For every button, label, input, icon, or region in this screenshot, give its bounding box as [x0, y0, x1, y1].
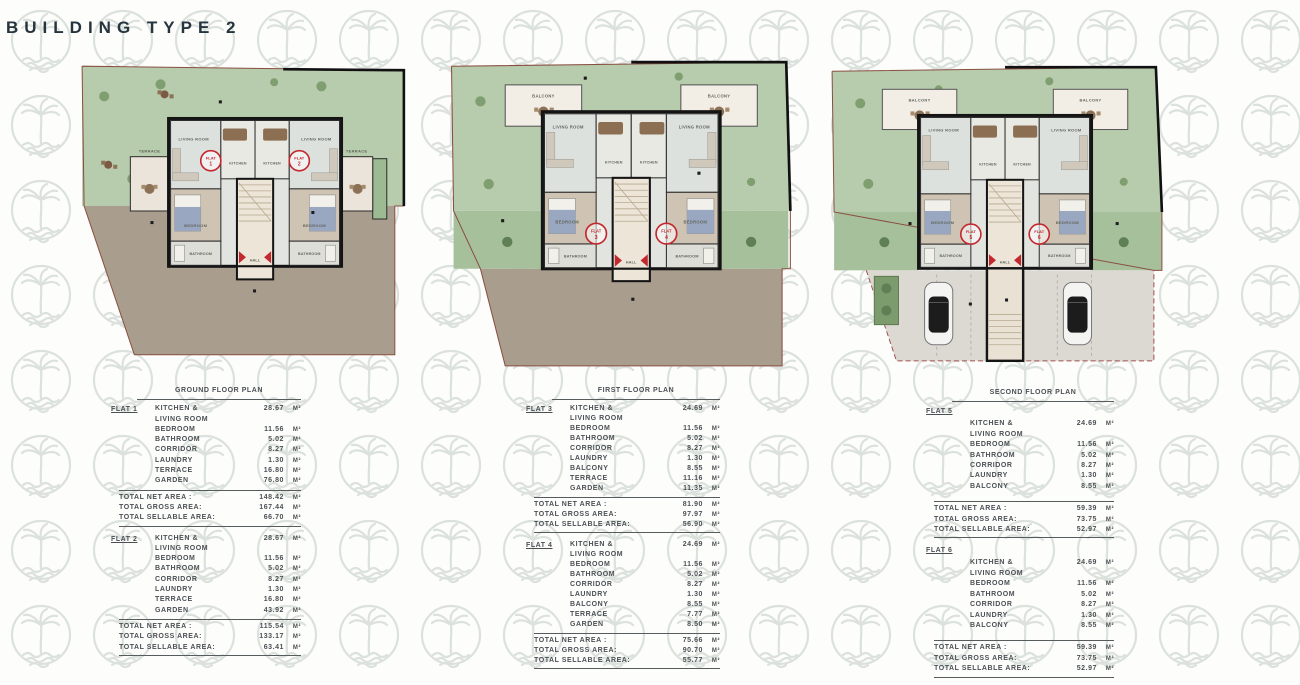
flat-5-badge: FLAT 5	[961, 224, 981, 244]
total-row: TOTAL SELLABLE AREA: 55.77 M²	[534, 656, 720, 666]
svg-text:BALCONY: BALCONY	[708, 93, 731, 98]
total-value: 97.97	[667, 510, 703, 520]
flat-6-section: FLAT 6 KITCHEN & LIVING ROOM 24.69 M² BE…	[918, 545, 1114, 677]
room-name: BEDROOM	[570, 560, 667, 570]
area-unit: M²	[1097, 419, 1114, 440]
area-unit: M²	[284, 503, 301, 513]
room-area-value: 8.27	[248, 445, 284, 455]
room-name: CORRIDOR	[570, 580, 667, 590]
total-row: TOTAL GROSS AREA: 73.75 M²	[934, 515, 1114, 525]
room-area-value: 11.56	[667, 560, 703, 570]
svg-text:BALCONY: BALCONY	[1080, 97, 1102, 102]
total-label: TOTAL GROSS AREA:	[534, 646, 667, 656]
flat-label: FLAT 4	[526, 541, 553, 551]
room-area-value: 5.02	[1061, 590, 1097, 600]
svg-text:BEDROOM: BEDROOM	[184, 223, 207, 228]
area-unit: M²	[703, 636, 720, 646]
total-row: TOTAL NET AREA : 59.39 M²	[934, 504, 1114, 514]
svg-text:BEDROOM: BEDROOM	[555, 219, 579, 224]
area-unit: M²	[703, 464, 720, 474]
area-unit: M²	[284, 404, 301, 425]
flat-5-section: FLAT 5 KITCHEN & LIVING ROOM 24.69 M² BE…	[918, 406, 1114, 538]
total-label: TOTAL GROSS AREA:	[934, 654, 1061, 664]
flat-label: FLAT 5	[926, 407, 953, 417]
area-unit: M²	[284, 632, 301, 642]
svg-text:FLAT: FLAT	[591, 229, 602, 234]
area-unit: M²	[703, 434, 720, 444]
room-name: LAUNDRY	[970, 611, 1061, 621]
room-name: LAUNDRY	[570, 454, 667, 464]
area-row: TERRACE 11.16 M²	[570, 474, 720, 484]
area-unit: M²	[1097, 451, 1114, 461]
total-label: TOTAL SELLABLE AREA:	[934, 664, 1061, 674]
room-name: BEDROOM	[970, 440, 1061, 450]
svg-text:KITCHEN: KITCHEN	[640, 160, 658, 164]
room-area-value: 24.69	[667, 404, 703, 424]
svg-text:5: 5	[969, 235, 972, 241]
total-label: TOTAL GROSS AREA:	[534, 510, 667, 520]
flat-label: FLAT 2	[111, 535, 138, 545]
room-name: BALCONY	[570, 600, 667, 610]
total-row: TOTAL NET AREA : 59.39 M²	[934, 643, 1114, 653]
area-row: BALCONY 8.55 M²	[970, 621, 1114, 631]
area-unit: M²	[703, 424, 720, 434]
total-label: TOTAL SELLABLE AREA:	[119, 513, 248, 523]
total-row: TOTAL GROSS AREA: 97.97 M²	[534, 510, 720, 520]
area-row: CORRIDOR 8.27 M²	[155, 445, 301, 455]
total-row: TOTAL SELLABLE AREA: 52.97 M²	[934, 664, 1114, 674]
total-value: 52.97	[1061, 664, 1097, 674]
second-floor-table: SECOND FLOOR PLAN FLAT 5 KITCHEN & LIVIN…	[918, 388, 1114, 685]
total-value: 63.41	[248, 643, 284, 653]
room-area-value: 11.56	[248, 554, 284, 564]
svg-text:BATHROOM: BATHROOM	[564, 254, 587, 258]
side-green-strip	[373, 159, 387, 219]
room-area-value: 16.80	[248, 466, 284, 476]
room-area-value: 5.02	[667, 434, 703, 444]
area-unit: M²	[703, 590, 720, 600]
area-unit: M²	[703, 580, 720, 590]
room-name: BEDROOM	[155, 425, 248, 435]
svg-text:KITCHEN: KITCHEN	[229, 162, 247, 166]
first-floor-table: FIRST FLOOR PLAN FLAT 3 KITCHEN & LIVING…	[518, 386, 720, 676]
area-row: BATHROOM 5.02 M²	[155, 564, 301, 574]
flat-label: FLAT 3	[526, 405, 553, 415]
flat-2-section: FLAT 2 KITCHEN & LIVING ROOM 28.67 M² BE…	[103, 534, 301, 656]
area-row: CORRIDOR 8.27 M²	[970, 600, 1114, 610]
room-name: GARDEN	[570, 620, 667, 630]
area-unit: M²	[703, 484, 720, 494]
area-row: BEDROOM 11.56 M²	[570, 560, 720, 570]
area-row: BATHROOM 5.02 M²	[970, 451, 1114, 461]
svg-text:BATHROOM: BATHROOM	[189, 252, 212, 256]
total-label: TOTAL SELLABLE AREA:	[534, 656, 667, 666]
area-unit: M²	[1097, 525, 1114, 535]
total-value: 52.97	[1061, 525, 1097, 535]
svg-text:BATHROOM: BATHROOM	[1048, 254, 1071, 258]
area-unit: M²	[284, 554, 301, 564]
total-value: 133.17	[248, 632, 284, 642]
area-unit: M²	[284, 493, 301, 503]
total-value: 115.54	[248, 622, 284, 632]
area-row: GARDEN 11.35 M²	[570, 484, 720, 494]
svg-text:BEDROOM: BEDROOM	[303, 223, 326, 228]
total-row: TOTAL SELLABLE AREA: 56.90 M²	[534, 520, 720, 530]
svg-text:HALL: HALL	[626, 261, 637, 265]
room-area-value: 8.55	[1061, 482, 1097, 492]
area-unit: M²	[703, 500, 720, 510]
svg-text:BALCONY: BALCONY	[532, 93, 555, 98]
area-unit: M²	[284, 435, 301, 445]
total-row: TOTAL NET AREA : 115.54 M²	[119, 622, 301, 632]
room-name: TERRACE	[570, 474, 667, 484]
area-unit: M²	[703, 656, 720, 666]
room-name: KITCHEN & LIVING ROOM	[570, 540, 667, 560]
area-row: BEDROOM 11.56 M²	[570, 424, 720, 434]
area-row: BEDROOM 11.56 M²	[970, 440, 1114, 450]
flat-label: FLAT 1	[111, 405, 138, 415]
room-name: KITCHEN & LIVING ROOM	[155, 534, 248, 555]
area-unit: M²	[284, 445, 301, 455]
room-name: GARDEN	[155, 606, 248, 616]
flat-1-badge: FLAT 1	[201, 151, 221, 171]
room-area-value: 8.55	[667, 464, 703, 474]
area-row: TERRACE 16.80 M²	[155, 466, 301, 476]
room-name: KITCHEN & LIVING ROOM	[155, 404, 248, 425]
total-label: TOTAL SELLABLE AREA:	[934, 525, 1061, 535]
room-name: BATHROOM	[570, 570, 667, 580]
total-value: 55.77	[667, 656, 703, 666]
area-unit: M²	[1097, 654, 1114, 664]
area-row: GARDEN 43.92 M²	[155, 606, 301, 616]
area-row: CORRIDOR 8.27 M²	[570, 580, 720, 590]
svg-text:LIVING ROOM: LIVING ROOM	[679, 124, 710, 129]
total-value: 66.70	[248, 513, 284, 523]
svg-text:2: 2	[298, 162, 301, 168]
total-row: TOTAL GROSS AREA: 73.75 M²	[934, 654, 1114, 664]
area-unit: M²	[284, 513, 301, 523]
area-row: BATHROOM 5.02 M²	[155, 435, 301, 445]
area-row: LAUNDRY 1.30 M²	[155, 585, 301, 595]
total-value: 90.70	[667, 646, 703, 656]
area-row: CORRIDOR 8.27 M²	[155, 575, 301, 585]
second-floor-plan-drawing: FLAT 5 FLAT 6 BALCONY BALCONY LIVING ROO…	[818, 56, 1176, 370]
area-row: BATHROOM 5.02 M²	[570, 434, 720, 444]
svg-text:HALL: HALL	[250, 258, 261, 262]
room-area-value: 8.27	[1061, 461, 1097, 471]
total-label: TOTAL NET AREA :	[934, 504, 1061, 514]
area-unit: M²	[703, 404, 720, 424]
room-area-value: 8.55	[667, 600, 703, 610]
room-name: CORRIDOR	[970, 600, 1061, 610]
svg-text:BATHROOM: BATHROOM	[675, 254, 698, 258]
planter-box	[874, 276, 898, 324]
area-row: LAUNDRY 1.30 M²	[570, 590, 720, 600]
side-garden-left	[834, 212, 918, 270]
room-area-value: 16.80	[248, 595, 284, 605]
room-name: BEDROOM	[970, 579, 1061, 589]
svg-text:LIVING ROOM: LIVING ROOM	[179, 137, 210, 142]
svg-text:BATHROOM: BATHROOM	[939, 254, 962, 258]
area-unit: M²	[1097, 461, 1114, 471]
total-value: 73.75	[1061, 654, 1097, 664]
area-unit: M²	[703, 570, 720, 580]
total-value: 56.90	[667, 520, 703, 530]
area-unit: M²	[703, 610, 720, 620]
car-right	[1063, 282, 1091, 344]
total-label: TOTAL NET AREA :	[934, 643, 1061, 653]
flat-label: FLAT 6	[926, 546, 953, 556]
area-row: BALCONY 8.55 M²	[570, 600, 720, 610]
room-area-value: 11.35	[667, 484, 703, 494]
svg-text:3: 3	[595, 235, 598, 241]
table-heading: FIRST FLOOR PLAN	[552, 386, 720, 400]
total-value: 148.42	[248, 493, 284, 503]
room-name: BATHROOM	[570, 434, 667, 444]
area-row: KITCHEN & LIVING ROOM 28.67 M²	[155, 534, 301, 555]
area-unit: M²	[1097, 600, 1114, 610]
area-row: BATHROOM 5.02 M²	[570, 570, 720, 580]
area-unit: M²	[1097, 515, 1114, 525]
total-label: TOTAL NET AREA :	[119, 622, 248, 632]
total-label: TOTAL SELLABLE AREA:	[119, 643, 248, 653]
area-unit: M²	[284, 606, 301, 616]
area-row: KITCHEN & LIVING ROOM 24.69 M²	[970, 419, 1114, 440]
room-name: KITCHEN & LIVING ROOM	[570, 404, 667, 424]
room-name: GARDEN	[155, 476, 248, 486]
room-name: BEDROOM	[155, 554, 248, 564]
room-name: CORRIDOR	[970, 461, 1061, 471]
area-row: BALCONY 8.55 M²	[970, 482, 1114, 492]
flat-1-section: FLAT 1 KITCHEN & LIVING ROOM 28.67 M² BE…	[103, 404, 301, 526]
room-area-value: 8.27	[1061, 600, 1097, 610]
car-left	[925, 282, 953, 344]
area-row: TERRACE 16.80 M²	[155, 595, 301, 605]
room-area-value: 5.02	[1061, 451, 1097, 461]
room-area-value: 11.56	[667, 424, 703, 434]
area-row: KITCHEN & LIVING ROOM 24.69 M²	[570, 404, 720, 424]
area-row: KITCHEN & LIVING ROOM 28.67 M²	[155, 404, 301, 425]
area-row: GARDEN 76.80 M²	[155, 476, 301, 486]
area-row: LAUNDRY 1.30 M²	[970, 611, 1114, 621]
room-name: BALCONY	[970, 482, 1061, 492]
room-name: BEDROOM	[570, 424, 667, 434]
svg-text:6: 6	[1038, 235, 1041, 241]
flat-6-badge: FLAT 6	[1029, 224, 1049, 244]
svg-text:LIVING ROOM: LIVING ROOM	[1051, 128, 1082, 133]
svg-text:BALCONY: BALCONY	[909, 97, 931, 102]
svg-text:LIVING ROOM: LIVING ROOM	[301, 137, 332, 142]
room-area-value: 28.67	[248, 534, 284, 555]
area-unit: M²	[703, 520, 720, 530]
table-heading: SECOND FLOOR PLAN	[952, 388, 1114, 402]
area-unit: M²	[1097, 643, 1114, 653]
flat-4-badge: FLAT 4	[656, 223, 677, 244]
room-area-value: 1.30	[1061, 611, 1097, 621]
flat-4-section: FLAT 4 KITCHEN & LIVING ROOM 24.69 M² BE…	[518, 540, 720, 669]
total-label: TOTAL NET AREA :	[119, 493, 248, 503]
total-row: TOTAL GROSS AREA: 133.17 M²	[119, 632, 301, 642]
total-label: TOTAL NET AREA :	[534, 500, 667, 510]
room-name: TERRACE	[155, 595, 248, 605]
room-area-value: 76.80	[248, 476, 284, 486]
area-row: TERRACE 7.77 M²	[570, 610, 720, 620]
area-unit: M²	[1097, 590, 1114, 600]
total-row: TOTAL SELLABLE AREA: 63.41 M²	[119, 643, 301, 653]
flat-3-section: FLAT 3 KITCHEN & LIVING ROOM 24.69 M² BE…	[518, 404, 720, 533]
area-row: KITCHEN & LIVING ROOM 24.69 M²	[970, 558, 1114, 579]
svg-text:KITCHEN: KITCHEN	[605, 160, 623, 164]
total-row: TOTAL NET AREA : 75.66 M²	[534, 636, 720, 646]
area-unit: M²	[284, 534, 301, 555]
area-row: LAUNDRY 1.30 M²	[155, 456, 301, 466]
svg-text:HALL: HALL	[1000, 260, 1011, 264]
area-row: CORRIDOR 8.27 M²	[570, 444, 720, 454]
total-value: 59.39	[1061, 504, 1097, 514]
room-area-value: 1.30	[1061, 471, 1097, 481]
area-unit: M²	[1097, 504, 1114, 514]
svg-text:FLAT: FLAT	[966, 229, 977, 234]
flat-3-badge: FLAT 3	[586, 223, 607, 244]
total-row: TOTAL GROSS AREA: 167.44 M²	[119, 503, 301, 513]
svg-text:TERRACE: TERRACE	[139, 149, 161, 154]
room-name: LAUNDRY	[970, 471, 1061, 481]
total-value: 73.75	[1061, 515, 1097, 525]
room-area-value: 1.30	[248, 585, 284, 595]
area-unit: M²	[703, 540, 720, 560]
area-unit: M²	[1097, 558, 1114, 579]
total-label: TOTAL SELLABLE AREA:	[534, 520, 667, 530]
room-area-value: 8.27	[248, 575, 284, 585]
area-unit: M²	[1097, 579, 1114, 589]
total-row: TOTAL SELLABLE AREA: 52.97 M²	[934, 525, 1114, 535]
area-unit: M²	[703, 474, 720, 484]
area-unit: M²	[1097, 482, 1114, 492]
room-area-value: 1.30	[667, 454, 703, 464]
area-unit: M²	[284, 476, 301, 486]
room-area-value: 11.56	[248, 425, 284, 435]
svg-text:KITCHEN: KITCHEN	[979, 163, 997, 167]
room-area-value: 7.77	[667, 610, 703, 620]
svg-text:1: 1	[209, 162, 212, 168]
total-row: TOTAL SELLABLE AREA: 66.70 M²	[119, 513, 301, 523]
area-unit: M²	[1097, 664, 1114, 674]
ground-floor-plan-drawing: FLAT 1 FLAT 2 TERRACE TERRACE LIVING ROO…	[68, 60, 426, 364]
svg-text:LIVING ROOM: LIVING ROOM	[553, 124, 584, 129]
area-unit: M²	[284, 456, 301, 466]
area-unit: M²	[703, 560, 720, 570]
area-row: BEDROOM 11.56 M²	[155, 425, 301, 435]
flat-2-badge: FLAT 2	[289, 151, 309, 171]
total-row: TOTAL NET AREA : 148.42 M²	[119, 493, 301, 503]
room-area-value: 24.69	[1061, 419, 1097, 440]
svg-text:BEDROOM: BEDROOM	[1056, 220, 1079, 225]
room-name: LAUNDRY	[570, 590, 667, 600]
area-unit: M²	[703, 646, 720, 656]
room-area-value: 8.27	[667, 444, 703, 454]
area-row: LAUNDRY 1.30 M²	[970, 471, 1114, 481]
room-name: TERRACE	[155, 466, 248, 476]
total-value: 75.66	[667, 636, 703, 646]
page-title: BUILDING TYPE 2	[6, 18, 241, 38]
svg-text:FLAT: FLAT	[206, 156, 217, 161]
room-area-value: 11.56	[1061, 440, 1097, 450]
room-area-value: 1.30	[667, 590, 703, 600]
room-area-value: 11.16	[667, 474, 703, 484]
svg-text:FLAT: FLAT	[294, 156, 305, 161]
area-unit: M²	[284, 585, 301, 595]
area-row: BEDROOM 11.56 M²	[970, 579, 1114, 589]
area-unit: M²	[703, 620, 720, 630]
room-name: CORRIDOR	[155, 575, 248, 585]
svg-text:BATHROOM: BATHROOM	[298, 252, 321, 256]
svg-text:BEDROOM: BEDROOM	[931, 220, 954, 225]
room-name: BALCONY	[970, 621, 1061, 631]
area-unit: M²	[284, 575, 301, 585]
total-value: 167.44	[248, 503, 284, 513]
room-area-value: 24.69	[667, 540, 703, 560]
area-unit: M²	[1097, 440, 1114, 450]
room-area-value: 8.50	[667, 620, 703, 630]
terrace-right	[342, 157, 373, 211]
room-area-value: 5.02	[667, 570, 703, 580]
svg-text:4: 4	[665, 235, 668, 241]
room-area-value: 5.02	[248, 564, 284, 574]
area-row: KITCHEN & LIVING ROOM 24.69 M²	[570, 540, 720, 560]
room-name: GARDEN	[570, 484, 667, 494]
total-value: 59.39	[1061, 643, 1097, 653]
area-unit: M²	[703, 444, 720, 454]
svg-text:TERRACE: TERRACE	[346, 149, 368, 154]
rooms	[921, 117, 1090, 268]
room-name: BATHROOM	[970, 451, 1061, 461]
area-unit: M²	[284, 466, 301, 476]
room-name: LAUNDRY	[155, 585, 248, 595]
first-floor-plan-drawing: FLAT 3 FLAT 4 BALCONY BALCONY LIVING ROO…	[438, 58, 808, 370]
room-name: TERRACE	[570, 610, 667, 620]
total-row: TOTAL NET AREA : 81.90 M²	[534, 500, 720, 510]
area-row: BALCONY 8.55 M²	[570, 464, 720, 474]
area-unit: M²	[703, 510, 720, 520]
area-unit: M²	[284, 564, 301, 574]
ground-floor-table: GROUND FLOOR PLAN FLAT 1 KITCHEN & LIVIN…	[103, 386, 301, 663]
area-row: CORRIDOR 8.27 M²	[970, 461, 1114, 471]
area-row: BATHROOM 5.02 M²	[970, 590, 1114, 600]
area-unit: M²	[1097, 621, 1114, 631]
svg-text:FLAT: FLAT	[1034, 229, 1045, 234]
area-unit: M²	[284, 622, 301, 632]
room-area-value: 11.56	[1061, 579, 1097, 589]
soil-area	[480, 269, 782, 366]
room-name: BALCONY	[570, 464, 667, 474]
svg-text:KITCHEN: KITCHEN	[263, 162, 281, 166]
area-row: GARDEN 8.50 M²	[570, 620, 720, 630]
total-value: 81.90	[667, 500, 703, 510]
area-unit: M²	[284, 643, 301, 653]
room-name: BATHROOM	[155, 564, 248, 574]
room-name: KITCHEN & LIVING ROOM	[970, 558, 1061, 579]
room-area-value: 1.30	[248, 456, 284, 466]
svg-text:LIVING ROOM: LIVING ROOM	[929, 128, 960, 133]
room-name: CORRIDOR	[155, 445, 248, 455]
area-unit: M²	[703, 600, 720, 610]
room-name: BATHROOM	[155, 435, 248, 445]
area-row: BEDROOM 11.56 M²	[155, 554, 301, 564]
room-area-value: 28.67	[248, 404, 284, 425]
room-area-value: 24.69	[1061, 558, 1097, 579]
total-label: TOTAL GROSS AREA:	[119, 503, 248, 513]
area-unit: M²	[284, 595, 301, 605]
